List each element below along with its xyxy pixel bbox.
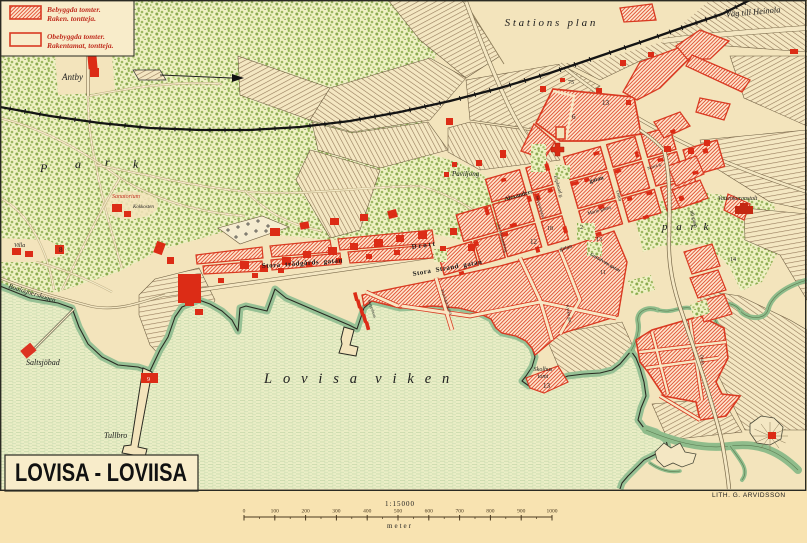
svg-text:18: 18 <box>547 226 553 232</box>
svg-text:Antby: Antby <box>61 72 83 82</box>
svg-text:900: 900 <box>517 509 526 515</box>
svg-text:Vattenkuranstalt: Vattenkuranstalt <box>718 196 758 202</box>
svg-text:300: 300 <box>332 509 341 515</box>
svg-text:LITH. G. ARVIDSSON: LITH. G. ARVIDSSON <box>712 492 786 499</box>
svg-text:1:15000: 1:15000 <box>385 500 415 508</box>
svg-text:Rakentamat, tontteja.: Rakentamat, tontteja. <box>46 41 114 50</box>
svg-text:800: 800 <box>486 509 495 515</box>
svg-text:Obebyggda tomter.: Obebyggda tomter. <box>47 32 105 41</box>
svg-text:13: 13 <box>602 99 610 107</box>
svg-text:Paviljong: Paviljong <box>451 170 480 178</box>
svg-text:9: 9 <box>147 377 150 383</box>
svg-text:12: 12 <box>530 238 538 246</box>
svg-text:k: k <box>133 157 139 171</box>
svg-text:Bebyggda tomter.: Bebyggda tomter. <box>46 5 101 14</box>
svg-text:400: 400 <box>363 509 372 515</box>
svg-text:Skolhus: Skolhus <box>534 367 553 373</box>
svg-text:600: 600 <box>425 509 434 515</box>
svg-text:r: r <box>105 155 110 169</box>
svg-text:Kokkosten: Kokkosten <box>132 205 154 210</box>
svg-text:a: a <box>75 157 81 171</box>
svg-text:Saltsjöbad: Saltsjöbad <box>26 358 61 367</box>
svg-text:13: 13 <box>543 382 551 390</box>
svg-text:75: 75 <box>568 80 574 86</box>
svg-text:L o v i s a v: L o v i s a v i k e n <box>263 371 449 387</box>
svg-text:Sanatorium: Sanatorium <box>112 194 141 200</box>
svg-text:Villa: Villa <box>14 243 25 249</box>
svg-text:700: 700 <box>455 509 464 515</box>
svg-text:500: 500 <box>394 509 403 515</box>
svg-text:0: 0 <box>243 509 246 515</box>
svg-text:P: P <box>39 161 48 175</box>
svg-text:14: 14 <box>730 257 736 263</box>
svg-text:Tullbro: Tullbro <box>104 431 127 440</box>
svg-text:p a r k: p a r k <box>661 221 711 233</box>
svg-text:13: 13 <box>596 237 602 243</box>
svg-text:6: 6 <box>572 113 576 121</box>
svg-text:11: 11 <box>600 270 606 276</box>
svg-text:meter: meter <box>387 522 413 530</box>
svg-text:S t a t i o n s p l a n: S t a t i o n s p l a n <box>505 17 596 29</box>
svg-text:8: 8 <box>59 246 63 254</box>
svg-text:2: 2 <box>580 225 583 231</box>
svg-text:Raken. tontteja.: Raken. tontteja. <box>46 14 96 23</box>
svg-text:1000: 1000 <box>547 509 558 515</box>
svg-text:tomt: tomt <box>538 374 549 380</box>
svg-text:200: 200 <box>301 509 310 515</box>
svg-text:LOVISA - LOVIISA: LOVISA - LOVIISA <box>15 459 187 487</box>
svg-text:100: 100 <box>271 509 280 515</box>
